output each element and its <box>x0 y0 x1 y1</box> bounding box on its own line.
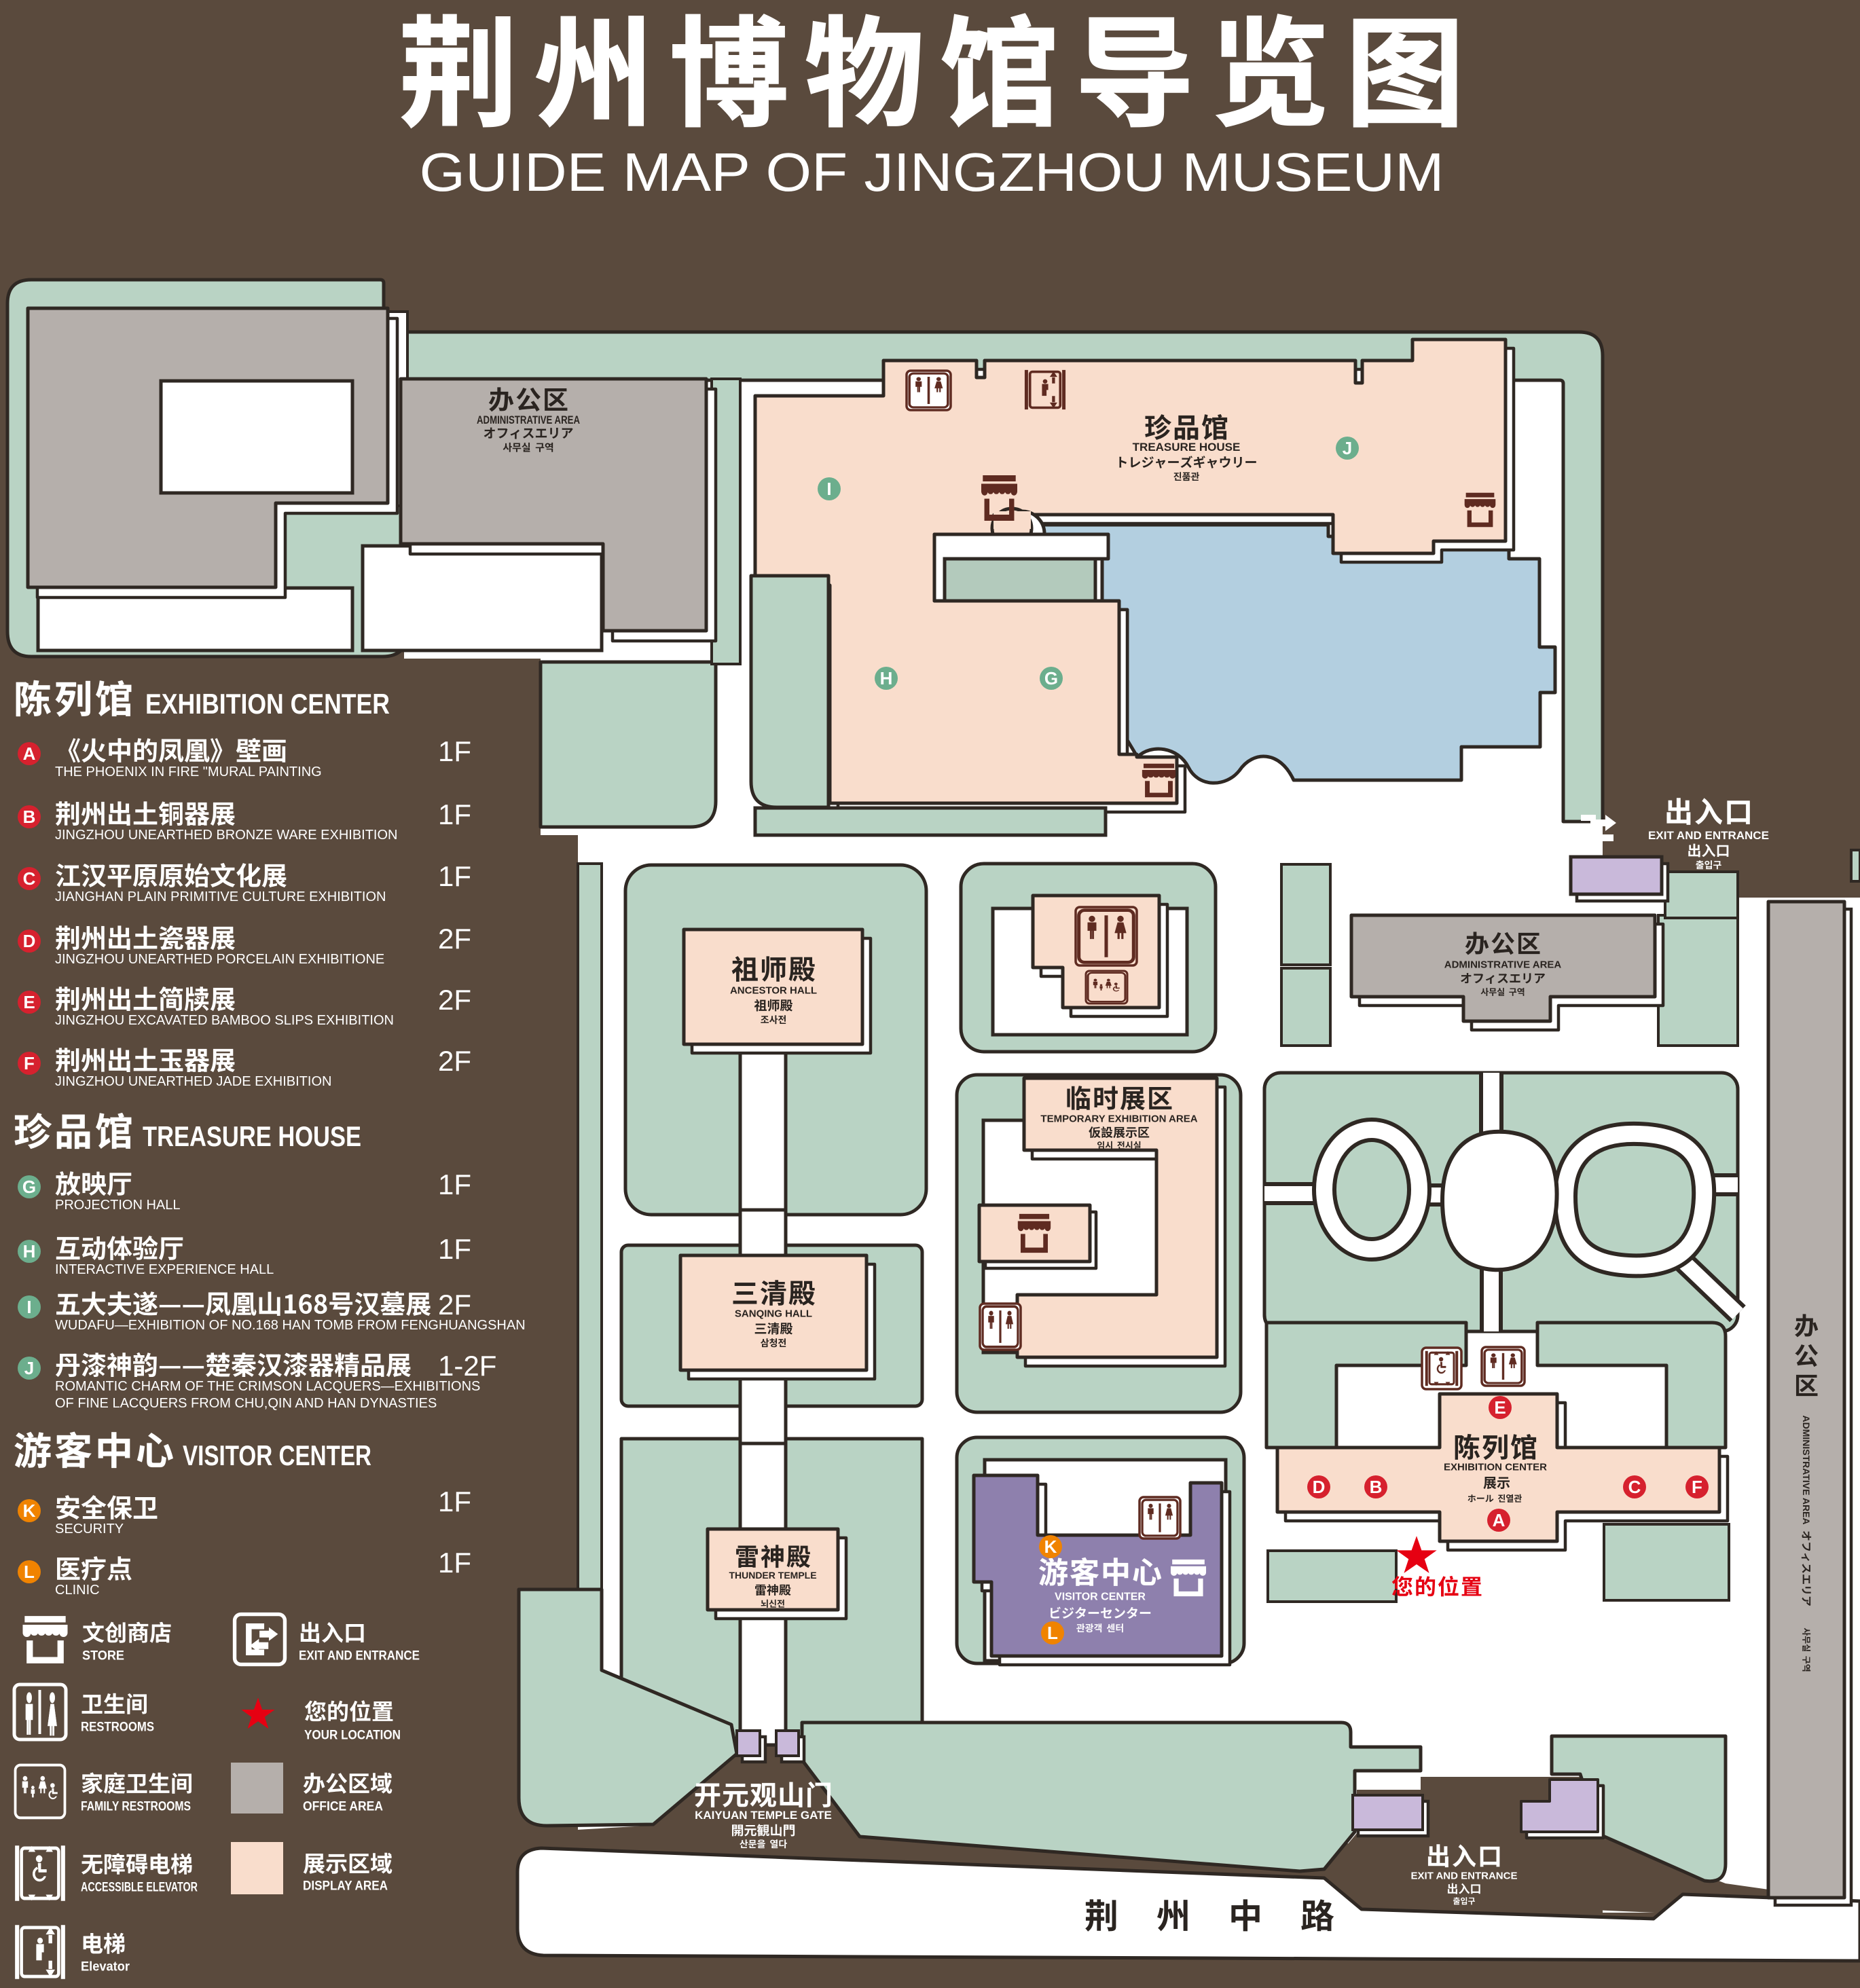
svg-text:J: J <box>1343 438 1352 458</box>
svg-text:TEMPORARY EXHIBITION AREA: TEMPORARY EXHIBITION AREA <box>1040 1113 1197 1124</box>
svg-text:GUIDE MAP OF JINGZHOU MUSEUM: GUIDE MAP OF JINGZHOU MUSEUM <box>420 142 1444 202</box>
svg-text:JINGZHOU EXCAVATED BAMBOO SLIP: JINGZHOU EXCAVATED BAMBOO SLIPS EXHIBITI… <box>55 1013 394 1028</box>
svg-text:A: A <box>1493 1510 1506 1530</box>
svg-text:I: I <box>26 1297 31 1317</box>
svg-text:ACCESSIBLE ELEVATOR: ACCESSIBLE ELEVATOR <box>81 1881 198 1895</box>
svg-text:I: I <box>826 479 831 499</box>
svg-text:Elevator: Elevator <box>81 1960 130 1974</box>
svg-text:ADMINISTRATIVE AREA: ADMINISTRATIVE AREA <box>1444 959 1562 970</box>
svg-text:JINGZHOU UNEARTHED BRONZE WARE: JINGZHOU UNEARTHED BRONZE WARE EXHIBITIO… <box>55 828 397 843</box>
svg-text:JIANGHAN PLAIN PRIMITIVE CULTU: JIANGHAN PLAIN PRIMITIVE CULTURE EXHIBIT… <box>55 889 386 904</box>
svg-text:K: K <box>1044 1536 1057 1557</box>
svg-text:CLINIC: CLINIC <box>55 1583 100 1598</box>
svg-text:B: B <box>1370 1477 1383 1497</box>
svg-text:EXHIBITION CENTER: EXHIBITION CENTER <box>1444 1461 1547 1473</box>
svg-text:H: H <box>23 1241 36 1262</box>
svg-text:ANCESTOR HALL: ANCESTOR HALL <box>730 984 817 996</box>
svg-text:OFFICE AREA: OFFICE AREA <box>303 1800 383 1814</box>
svg-text:ADMINISTRATIVE AREA: ADMINISTRATIVE AREA <box>1801 1416 1812 1525</box>
svg-text:E: E <box>23 992 35 1012</box>
svg-text:F: F <box>24 1053 35 1073</box>
svg-text:D: D <box>1313 1477 1326 1497</box>
svg-text:INTERACTIVE EXPERIENCE HALL: INTERACTIVE EXPERIENCE HALL <box>55 1262 274 1277</box>
svg-text:VISITOR CENTER: VISITOR CENTER <box>1055 1591 1146 1603</box>
svg-text:L: L <box>1047 1623 1058 1643</box>
svg-text:1F: 1F <box>438 1168 471 1200</box>
svg-text:EXIT AND ENTRANCE: EXIT AND ENTRANCE <box>299 1649 420 1663</box>
svg-text:L: L <box>24 1562 35 1582</box>
svg-text:ADMINISTRATIVE AREA: ADMINISTRATIVE AREA <box>477 413 580 426</box>
svg-text:TREASURE HOUSE: TREASURE HOUSE <box>143 1120 361 1152</box>
svg-text:STORE: STORE <box>82 1649 124 1663</box>
svg-text:B: B <box>23 807 36 827</box>
svg-text:1F: 1F <box>438 1233 471 1265</box>
svg-text:G: G <box>1044 668 1058 688</box>
svg-text:DISPLAY AREA: DISPLAY AREA <box>303 1879 388 1894</box>
svg-text:H: H <box>880 668 893 688</box>
svg-text:1F: 1F <box>438 735 471 767</box>
svg-text:E: E <box>1494 1397 1506 1418</box>
svg-text:JINGZHOU UNEARTHED JADE EXHIBI: JINGZHOU UNEARTHED JADE EXHIBITION <box>55 1074 331 1089</box>
svg-text:C: C <box>1628 1477 1641 1497</box>
svg-text:KAIYUAN TEMPLE GATE: KAIYUAN TEMPLE GATE <box>695 1809 832 1822</box>
svg-text:1F: 1F <box>438 1547 471 1579</box>
svg-text:TREASURE HOUSE: TREASURE HOUSE <box>1133 441 1241 454</box>
svg-text:2F: 2F <box>438 1289 471 1321</box>
svg-text:EXIT AND ENTRANCE: EXIT AND ENTRANCE <box>1411 1870 1518 1881</box>
svg-text:VISITOR CENTER: VISITOR CENTER <box>183 1439 371 1471</box>
svg-text:2F: 2F <box>438 984 471 1016</box>
svg-text:THE PHOENIX IN FIRE "MURAL PAI: THE PHOENIX IN FIRE "MURAL PAINTING <box>55 765 322 779</box>
svg-text:FAMILY RESTROOMS: FAMILY RESTROOMS <box>81 1800 191 1814</box>
svg-text:1F: 1F <box>438 860 471 892</box>
svg-text:SANQING HALL: SANQING HALL <box>735 1308 812 1319</box>
svg-text:THUNDER TEMPLE: THUNDER TEMPLE <box>729 1570 816 1581</box>
svg-text:YOUR LOCATION: YOUR LOCATION <box>304 1729 401 1743</box>
svg-text:A: A <box>23 743 36 764</box>
svg-text:D: D <box>23 931 36 951</box>
svg-text:SECURITY: SECURITY <box>55 1522 124 1536</box>
svg-text:JINGZHOU UNEARTHED PORCELAIN E: JINGZHOU UNEARTHED PORCELAIN EXHIBITIONE <box>55 952 384 967</box>
svg-text:RESTROOMS: RESTROOMS <box>81 1720 154 1735</box>
svg-text:OF FINE LACQUERS FROM CHU,QIN: OF FINE LACQUERS FROM CHU,QIN AND HAN DY… <box>55 1396 437 1411</box>
svg-text:C: C <box>23 868 36 889</box>
svg-text:G: G <box>22 1177 36 1197</box>
svg-text:1F: 1F <box>438 1486 471 1517</box>
svg-text:1F: 1F <box>438 798 471 830</box>
svg-text:EXHIBITION CENTER: EXHIBITION CENTER <box>145 688 390 720</box>
svg-text:2F: 2F <box>438 1045 471 1077</box>
svg-text:J: J <box>24 1358 34 1378</box>
svg-text:ROMANTIC CHARM OF THE CRIMSON: ROMANTIC CHARM OF THE CRIMSON LACQUERS—E… <box>55 1379 480 1394</box>
svg-text:2F: 2F <box>438 923 471 955</box>
svg-text:EXIT AND ENTRANCE: EXIT AND ENTRANCE <box>1648 829 1769 842</box>
svg-text:K: K <box>23 1501 36 1521</box>
svg-text:PROJECTION HALL: PROJECTION HALL <box>55 1198 180 1213</box>
svg-text:1-2F: 1-2F <box>438 1350 496 1382</box>
svg-text:F: F <box>1692 1477 1702 1497</box>
